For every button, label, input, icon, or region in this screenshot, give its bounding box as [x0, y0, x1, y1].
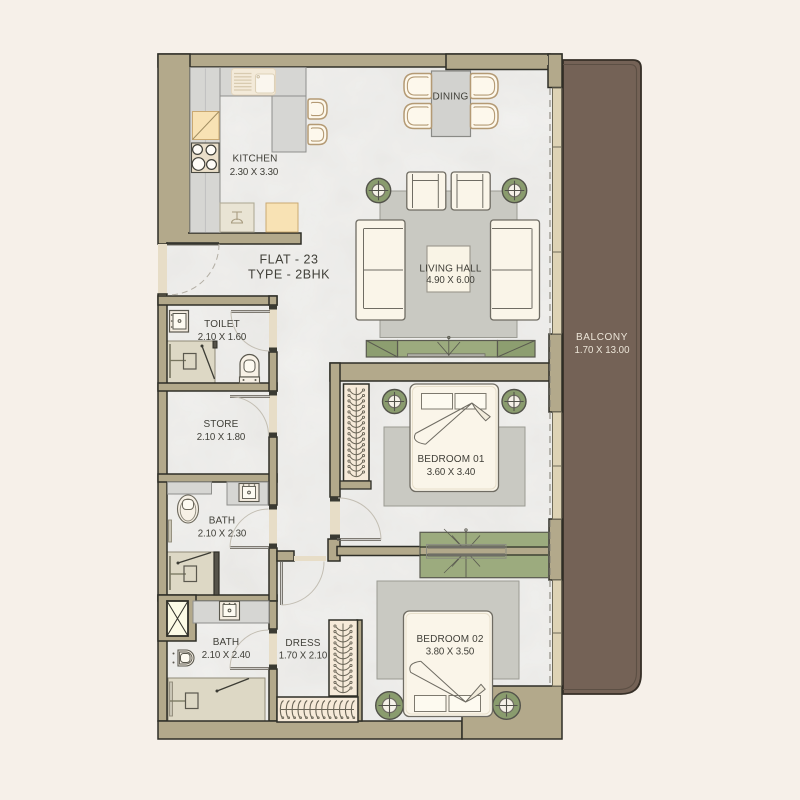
svg-text:KITCHEN: KITCHEN [233, 154, 278, 165]
svg-text:BEDROOM 01: BEDROOM 01 [417, 454, 484, 465]
svg-text:2.30 X 3.30: 2.30 X 3.30 [230, 167, 279, 178]
svg-text:2.10 X 1.80: 2.10 X 1.80 [197, 432, 246, 443]
svg-text:3.80 X 3.50: 3.80 X 3.50 [426, 647, 475, 658]
svg-text:STORE: STORE [203, 419, 238, 430]
svg-text:2.10 X 2.30: 2.10 X 2.30 [198, 529, 247, 540]
svg-text:DRESS: DRESS [285, 638, 320, 649]
svg-text:BATH: BATH [213, 637, 240, 648]
svg-text:1.70 X 13.00: 1.70 X 13.00 [575, 345, 631, 356]
svg-text:2.10 X 2.40: 2.10 X 2.40 [202, 650, 251, 661]
svg-text:2.10 X 1.60: 2.10 X 1.60 [198, 332, 247, 343]
svg-text:3.60 X 3.40: 3.60 X 3.40 [427, 467, 476, 478]
svg-text:LIVING HALL: LIVING HALL [419, 264, 482, 275]
svg-text:FLAT - 23: FLAT - 23 [260, 253, 319, 267]
svg-text:DINING: DINING [433, 92, 469, 103]
svg-text:4.90 X 6.00: 4.90 X 6.00 [426, 275, 475, 286]
svg-text:BEDROOM 02: BEDROOM 02 [416, 634, 483, 645]
svg-text:BALCONY: BALCONY [576, 332, 628, 343]
svg-text:1.70 X 2.10: 1.70 X 2.10 [279, 651, 328, 662]
svg-text:TYPE - 2BHK: TYPE - 2BHK [248, 268, 330, 282]
svg-text:TOILET: TOILET [204, 319, 240, 330]
svg-text:BATH: BATH [209, 516, 236, 527]
